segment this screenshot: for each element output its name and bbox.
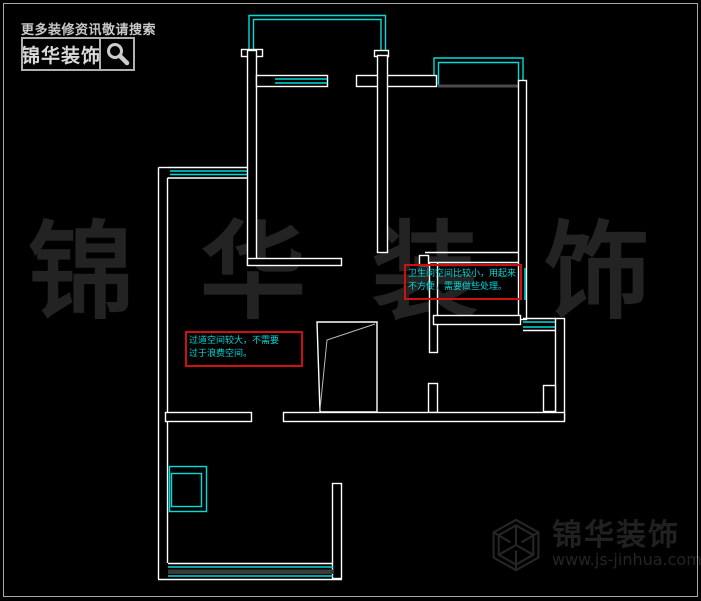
- bottom-window: [158, 564, 342, 580]
- duct-shaft: [170, 467, 207, 512]
- search-hint-text: 更多装修资讯敬请搜索: [21, 19, 156, 38]
- magnifier-icon[interactable]: [101, 39, 133, 69]
- floor-plan-drawing: [0, 0, 701, 601]
- annotation-corridor-line1: 过道空间较大，不需要: [189, 335, 299, 348]
- entry-door-symbol: [317, 322, 377, 412]
- balcony-top-left-window: [242, 16, 389, 57]
- brand-search-box[interactable]: 锦华装饰: [21, 37, 135, 71]
- annotation-corridor: 过道空间较大，不需要 过于浪费空间。: [185, 331, 303, 367]
- annotation-bathroom-line2: 不方便，需要做些处理。: [408, 281, 518, 294]
- annotation-corridor-line2: 过于浪费空间。: [189, 348, 299, 361]
- annotation-bathroom-line1: 卫生间空间比较小，用起来: [408, 268, 518, 281]
- cad-floorplan-screenshot: { "branding": { "search_hint": "更多装修资讯敬请…: [0, 0, 701, 601]
- balcony-top-right-window: [434, 58, 523, 86]
- brand-logo-text: 锦华装饰: [23, 39, 99, 69]
- exterior-interior-walls: [159, 51, 565, 580]
- annotation-bathroom: 卫生间空间比较小，用起来 不方便，需要做些处理。: [404, 264, 522, 300]
